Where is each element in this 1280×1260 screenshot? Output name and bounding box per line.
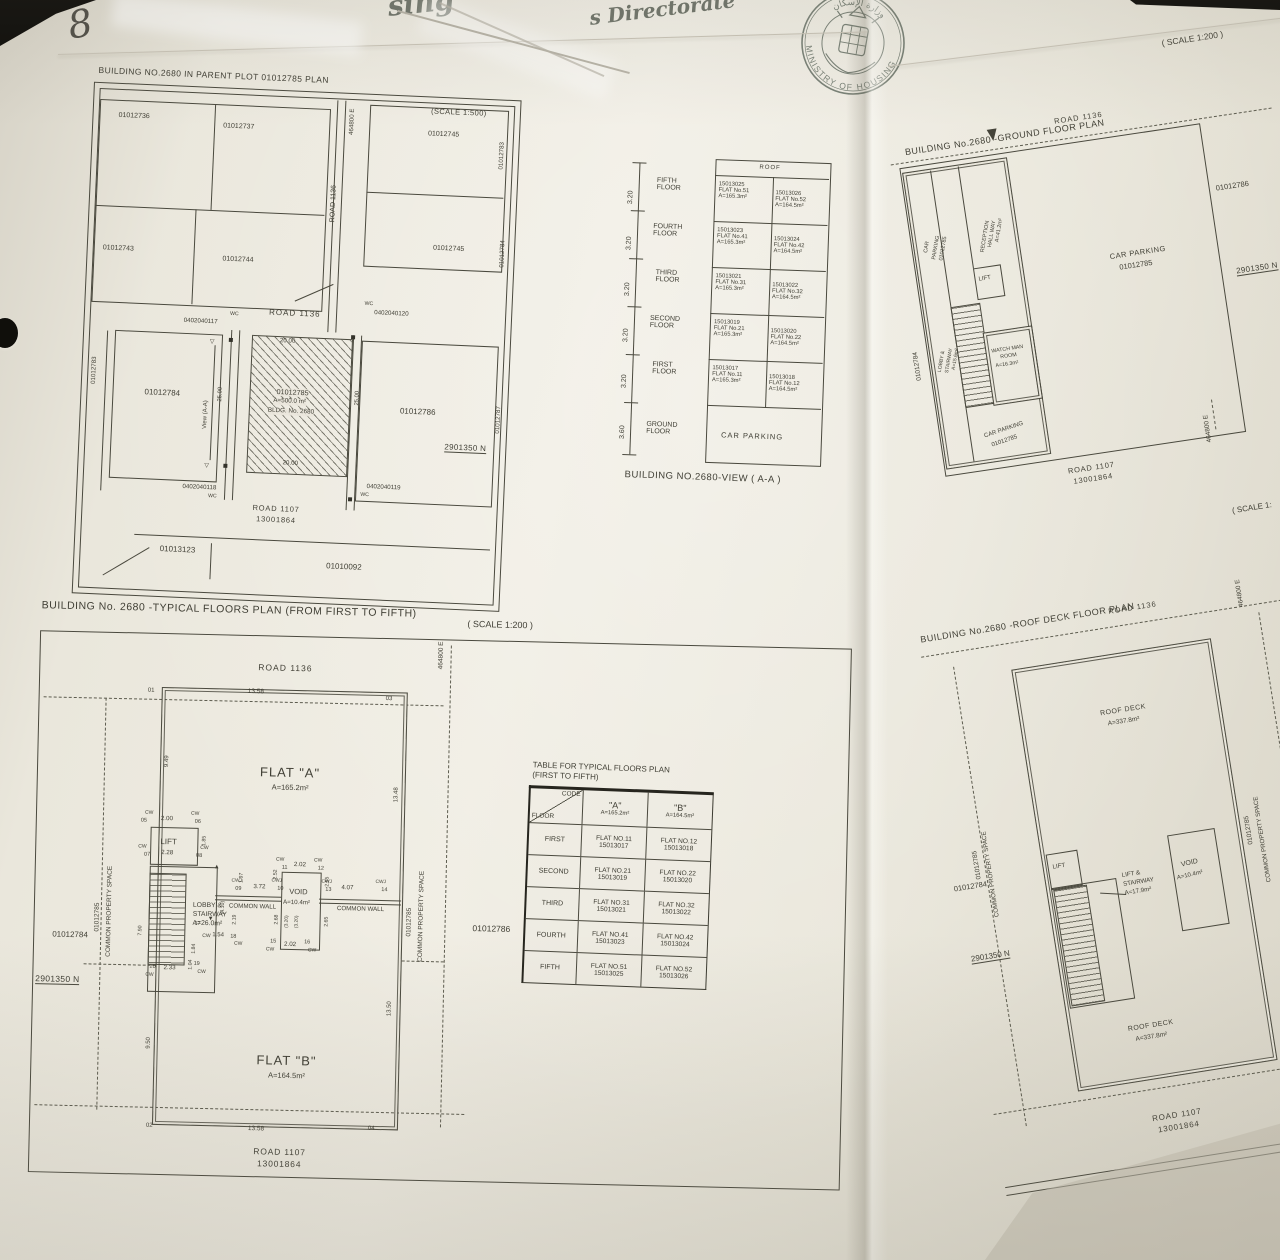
plan-annotation: COMMON PROPERTY SPACE: [1253, 796, 1273, 883]
plan-annotation: 01012783: [499, 142, 507, 170]
dim-tick: [626, 354, 640, 355]
plan-annotation: 02: [146, 1123, 153, 1130]
dim-tick: [622, 454, 636, 455]
roof-plan-title: BUILDING No.2680 -ROOF DECK FLOOR PLAN: [920, 602, 1135, 645]
survey-point: [351, 335, 355, 339]
table-header-code: CODE: [562, 791, 581, 799]
floor-name: SECONDFLOOR: [650, 315, 680, 331]
plan-annotation: 9.50: [146, 1037, 153, 1049]
parent-plot-plan: BUILDING NO.2680 IN PARENT PLOT 01012785…: [31, 58, 530, 628]
floor-height: 3.20: [627, 190, 635, 204]
plan-annotation: WC: [360, 493, 369, 499]
floor-height: 3.20: [625, 236, 633, 250]
plan-annotation: ▼: [208, 916, 214, 922]
floor-height: 3.20: [624, 282, 632, 296]
plan-annotation: 7.90: [138, 925, 144, 935]
table-floor: SECOND: [527, 855, 580, 888]
plan-annotation: 01012784: [52, 931, 88, 940]
plan-annotation: (4.10): [221, 901, 227, 915]
plan-annotation: View (A-A): [202, 400, 210, 429]
plan-annotation: 01012783: [91, 356, 99, 384]
plan-annotation: 2.28: [161, 850, 173, 857]
plan-annotation: 17: [194, 922, 200, 928]
plan-annotation: CWJ: [231, 879, 242, 884]
floor-name: FIRSTFLOOR: [652, 361, 677, 377]
parent-plan-title: BUILDING NO.2680 IN PARENT PLOT 01012785…: [98, 66, 329, 85]
plan-annotation: 20.00: [280, 338, 296, 345]
plan-annotation: 2901350 N: [444, 443, 486, 454]
plan-annotation: CW: [191, 812, 199, 817]
dim-tick: [632, 162, 646, 163]
survey-point: [348, 497, 352, 501]
plan-annotation: 01012784: [913, 351, 924, 381]
plan-annotation: 01012785: [94, 903, 102, 932]
table-subtitle: (FIRST TO FIFTH): [532, 771, 598, 782]
plan-annotation: 06: [195, 820, 201, 826]
plan-annotation: 2901350 N: [970, 950, 1010, 965]
plan-annotation: CW: [197, 970, 205, 975]
table-header-a: "A": [609, 800, 622, 810]
section-view-a-a: ROOF 3.20 FIFTHFLOOR 15013025FLAT No.51A…: [616, 148, 843, 505]
dim-tick: [629, 258, 643, 259]
plan-annotation: LIFT: [160, 838, 177, 847]
dim-chain: [629, 162, 640, 454]
plan-annotation: 01: [148, 688, 155, 695]
table-flat: FLAT NO.5215013026: [640, 956, 706, 989]
plan-annotation: 01012784: [953, 880, 987, 893]
stairway-hatch: [148, 873, 187, 966]
plan-annotation: 03: [386, 696, 393, 703]
plan-annotation: 2.52: [274, 869, 280, 879]
table-header-floor: FLOOR: [532, 813, 555, 821]
plan-annotation: 01012784: [144, 388, 180, 398]
flat-cell: 15013025FLAT No.51A=165.3m²: [718, 181, 749, 200]
plan-annotation: 12: [318, 867, 324, 873]
floor-height: 3.20: [621, 374, 629, 388]
void-outline: [280, 872, 322, 951]
plan-annotation: WC: [364, 302, 373, 308]
floor-name: THIRDFLOOR: [655, 269, 680, 285]
table-floor: THIRD: [526, 887, 579, 920]
plan-annotation: ROAD 1136: [258, 663, 312, 673]
section-title: BUILDING NO.2680-VIEW ( A-A ): [624, 470, 781, 486]
plan-annotation: 4.07: [341, 885, 353, 892]
floor-height: 3.20: [622, 328, 630, 342]
survey-point: [223, 464, 227, 468]
flat-cell: 15013019FLAT No.21A=165.3m²: [713, 319, 744, 338]
table-flat: FLAT NO.4115013023: [577, 921, 643, 954]
plan-annotation: A=500.0 m²: [273, 398, 306, 406]
lift-box: [973, 264, 1005, 300]
typical-plan-title: BUILDING No. 2680 -TYPICAL FLOORS PLAN (…: [42, 600, 417, 620]
plan-annotation: 2.00: [161, 816, 173, 823]
plan-annotation: 25.00: [217, 387, 224, 402]
plan-annotation: ▽: [210, 339, 215, 346]
plan-annotation: 2.65: [324, 917, 330, 927]
plan-annotation: 2.02: [284, 942, 296, 949]
table-flat: FLAT NO.2115013019: [579, 857, 645, 890]
plan-annotation: CW: [314, 858, 322, 863]
plan-annotation: 464800 E: [349, 108, 357, 135]
plan-annotation: VOID: [289, 888, 308, 896]
table-flat: FLAT NO.3115013021: [578, 889, 644, 922]
plan-annotation: 01012743: [103, 244, 134, 253]
flat-cell: 15013021FLAT No.31A=165.3m²: [715, 273, 746, 292]
plan-annotation: (3.20): [284, 915, 289, 928]
plan-annotation: ▽: [204, 463, 209, 470]
plan-annotation: 13: [325, 888, 331, 894]
table-floor: FIRST: [528, 823, 581, 856]
plan-annotation: 2901350 N: [35, 974, 80, 985]
plan-annotation: 3.72: [253, 884, 265, 891]
plan-annotation: 464800 E: [438, 641, 446, 669]
plan-annotation: 10: [277, 887, 283, 893]
plan-annotation: 2.68: [275, 914, 281, 924]
plan-annotation: 13001864: [256, 515, 296, 525]
dim-tick: [627, 306, 641, 307]
plan-annotation: 13001864: [1073, 472, 1114, 486]
plan-annotation: WC: [208, 494, 217, 500]
plan-annotation: 13.50: [386, 1001, 393, 1016]
floor-name: FIFTHFLOOR: [656, 177, 681, 193]
plan-annotation: COMMON PROPERTY SPACE: [981, 831, 1001, 918]
plan-annotation: CWJ: [321, 880, 332, 885]
flat-cell: 15013026FLAT No.52A=164.5m²: [775, 190, 806, 209]
table-flat: FLAT NO.5115013025: [575, 953, 641, 986]
plan-annotation: 11: [282, 866, 288, 872]
plan-annotation: CW: [276, 858, 284, 863]
plan-annotation: 20: [149, 965, 155, 971]
plan-annotation: CW: [138, 844, 146, 849]
flat-cell: 15013022FLAT No.32A=164.5m²: [772, 282, 803, 301]
plan-annotation: 01012737: [223, 122, 254, 131]
subject-plot-hatched: [246, 335, 353, 477]
roof-label: ROOF: [759, 165, 781, 172]
table-header-b: "B": [674, 803, 687, 813]
flat-cell: 15013018FLAT No.12A=164.5m²: [769, 374, 800, 393]
plan-annotation: CW: [234, 942, 242, 947]
plan-annotation: 01012786: [1215, 180, 1249, 193]
plan-annotation: 13.48: [393, 787, 400, 802]
plan-annotation: A=164.5m²: [268, 1071, 305, 1080]
plan-annotation: CW: [202, 934, 210, 939]
table-flat: FLAT NO.1115013017: [580, 825, 646, 858]
plan-annotation: 01013123: [159, 545, 195, 555]
survey-point: [229, 338, 233, 342]
typical-plan-scale: ( SCALE 1:200 ): [467, 620, 533, 631]
plan-annotation: CWJ: [375, 880, 386, 885]
north-arrow-icon: [987, 128, 999, 141]
plan-annotation: 13001864: [1158, 1120, 1201, 1135]
plan-annotation: COMMON WALL: [229, 904, 276, 912]
table-flat: FLAT NO.3215013022: [643, 892, 709, 925]
plan-annotation: 01012785: [972, 850, 983, 880]
plan-annotation: 0402040117: [184, 318, 218, 326]
plan-annotation: CW: [145, 973, 153, 978]
dim-tick: [631, 210, 645, 211]
plan-annotation: CW: [145, 811, 153, 816]
plan-annotation: ROAD 1107: [253, 1147, 306, 1157]
plan-annotation: 13001864: [257, 1159, 301, 1169]
flat-cell: 15013023FLAT No.41A=165.3m²: [717, 227, 748, 246]
plan-annotation: (3.20): [294, 916, 299, 929]
plan-annotation: CW: [200, 846, 208, 851]
plan-annotation: 15: [270, 939, 276, 945]
plan-annotation: 01012744: [222, 255, 253, 264]
floor-name: GROUNDFLOOR: [646, 421, 678, 437]
plan-annotation: 01012785: [1244, 815, 1255, 845]
plan-annotation: WC: [230, 312, 239, 318]
plan-annotation: LOBBY &: [193, 902, 222, 910]
plan-annotation: 01012784: [499, 240, 507, 268]
flat-cell: 15013017FLAT No.11A=165.3m²: [712, 365, 743, 384]
plan-annotation: 1.54: [212, 932, 224, 939]
plan-annotation: 2.19: [233, 915, 239, 925]
plan-annotation: FLAT "B": [256, 1053, 316, 1068]
plan-annotation: 01012786: [400, 407, 436, 417]
plan-annotation: 13.58: [248, 1126, 264, 1133]
table-flat: FLAT NO.2215013020: [644, 860, 710, 893]
plan-annotation: 2901350 N: [1236, 261, 1279, 277]
plan-annotation: 9.49: [164, 755, 171, 767]
plan-annotation: FLAT "A": [260, 765, 320, 780]
plan-annotation: 05: [141, 819, 147, 825]
flat-cell: 15013020FLAT No.22A=164.5m²: [770, 328, 801, 347]
plan-annotation: 09: [235, 887, 241, 893]
table-flat: FLAT NO.4215013024: [642, 924, 708, 957]
plan-annotation: 01012745: [428, 130, 459, 139]
plan-annotation: 20.00: [282, 460, 298, 467]
plan-annotation: 16: [304, 940, 310, 946]
table-floor: FOURTH: [525, 919, 578, 952]
table-header-b-area: A=164.5m²: [666, 812, 695, 819]
floor-height: 3.60: [619, 425, 627, 439]
plan-annotation: 01012785: [406, 908, 414, 937]
plan-annotation: 07: [144, 853, 150, 859]
plan-annotation: ( SCALE 1:: [1232, 501, 1273, 516]
plan-annotation: CW: [266, 947, 274, 952]
plan-annotation: 01012786: [472, 924, 510, 934]
table-header-a-area: A=165.2m²: [601, 810, 630, 817]
plan-annotation: 2.02: [294, 862, 306, 869]
table-flat: FLAT NO.1215013018: [645, 828, 711, 861]
photographed-plan-document: sing s Directorate MINISTRY OF HOUSING و…: [0, 0, 1280, 1260]
floor-name: FOURTHFLOOR: [653, 223, 683, 239]
plan-annotation: 464800 E: [1235, 579, 1246, 608]
plan-annotation: CW: [308, 948, 316, 953]
plan-annotation: 08: [196, 854, 202, 860]
flat-cell: 15013024FLAT No.42A=164.5m²: [773, 236, 804, 255]
plan-annotation: ▲: [214, 864, 220, 870]
dim-tick: [624, 402, 638, 403]
plan-annotation: 13.58: [248, 689, 264, 696]
table-floor: FIFTH: [523, 951, 576, 984]
typical-floors-table: TABLE FOR TYPICAL FLOORS PLAN (FIRST TO …: [518, 758, 742, 1011]
plan-annotation: A=165.2m²: [272, 783, 309, 792]
plan-annotation: 19: [194, 962, 200, 968]
floors-table-grid: CODE FLOOR "A" A=165.2m² "B" A=164.5m² F…: [521, 785, 713, 990]
plan-annotation: 01012736: [118, 112, 149, 121]
plan-annotation: 04: [368, 1126, 375, 1133]
plan-annotation: 1.84: [192, 944, 198, 954]
plan-annotation: 14: [381, 888, 387, 894]
plan-annotation: COMMON WALL: [337, 906, 384, 914]
plan-annotation: 01012745: [433, 245, 464, 254]
plan-annotation: 2.33: [163, 965, 175, 972]
plan-annotation: 01012785: [276, 388, 308, 397]
plan-annotation: 25.00: [354, 391, 361, 406]
plan-annotation: A=10.4m²: [283, 900, 310, 907]
plan-annotation: 01012787: [495, 406, 503, 434]
plan-annotation: 01010092: [326, 562, 362, 572]
